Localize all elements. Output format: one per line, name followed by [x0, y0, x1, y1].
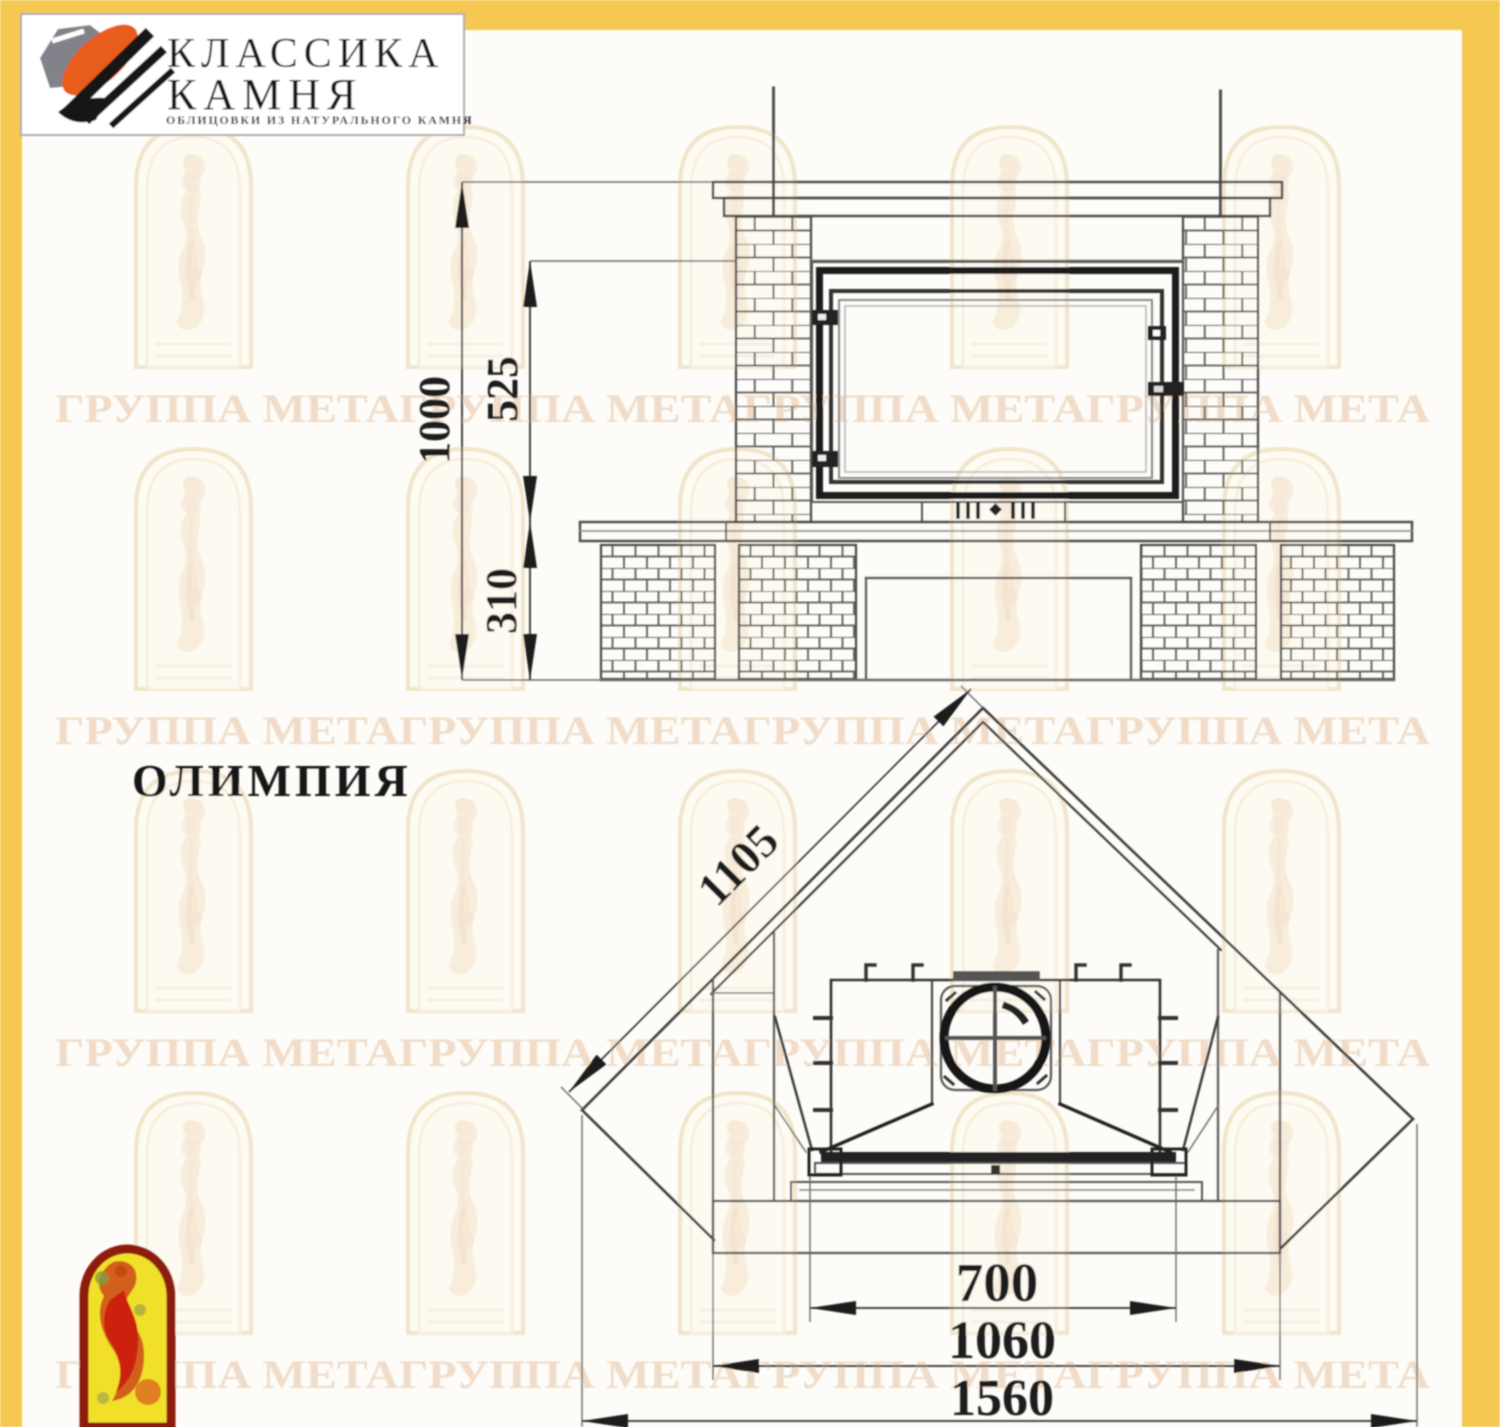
svg-text:ГРУППА МЕТАГРУППА МЕТАГРУППА М: ГРУППА МЕТАГРУППА МЕТАГРУППА МЕТАГРУППА …: [55, 1352, 1430, 1397]
svg-text:ГРУППА МЕТАГРУППА МЕТАГРУППА М: ГРУППА МЕТАГРУППА МЕТАГРУППА МЕТАГРУППА …: [55, 1030, 1430, 1075]
svg-text:ОБЛИЦОВКИ ИЗ НАТУРАЛЬНОГО КАМН: ОБЛИЦОВКИ ИЗ НАТУРАЛЬНОГО КАМНЯ: [166, 113, 473, 127]
svg-text:КАМНЯ: КАМНЯ: [167, 70, 363, 119]
svg-text:1560: 1560: [950, 1370, 1054, 1427]
svg-text:700: 700: [956, 1252, 1039, 1313]
svg-text:1060: 1060: [948, 1310, 1056, 1370]
svg-text:525: 525: [478, 356, 527, 422]
svg-text:1000: 1000: [410, 376, 459, 464]
svg-text:ОЛИМПИЯ: ОЛИМПИЯ: [132, 755, 412, 806]
svg-text:ГРУППА МЕТАГРУППА МЕТАГРУППА М: ГРУППА МЕТАГРУППА МЕТАГРУППА МЕТАГРУППА …: [55, 708, 1430, 753]
svg-text:310: 310: [477, 568, 526, 634]
